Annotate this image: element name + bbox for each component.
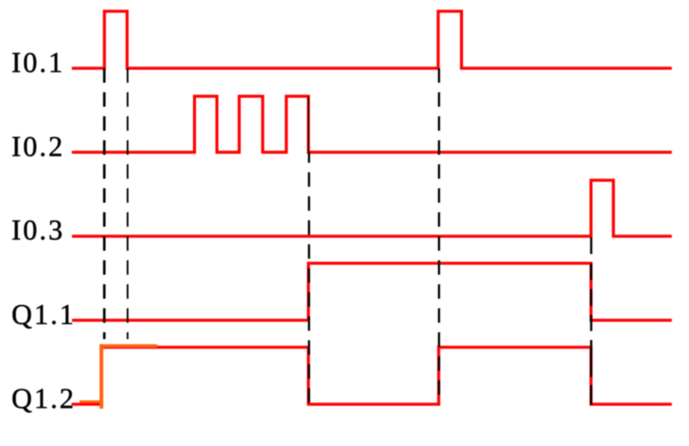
svg-text:I0.1: I0.1: [12, 48, 65, 79]
svg-text:I0.3: I0.3: [12, 216, 65, 247]
svg-text:Q1.2: Q1.2: [12, 384, 76, 415]
svg-text:I0.2: I0.2: [12, 132, 65, 163]
svg-text:Q1.1: Q1.1: [12, 300, 76, 331]
